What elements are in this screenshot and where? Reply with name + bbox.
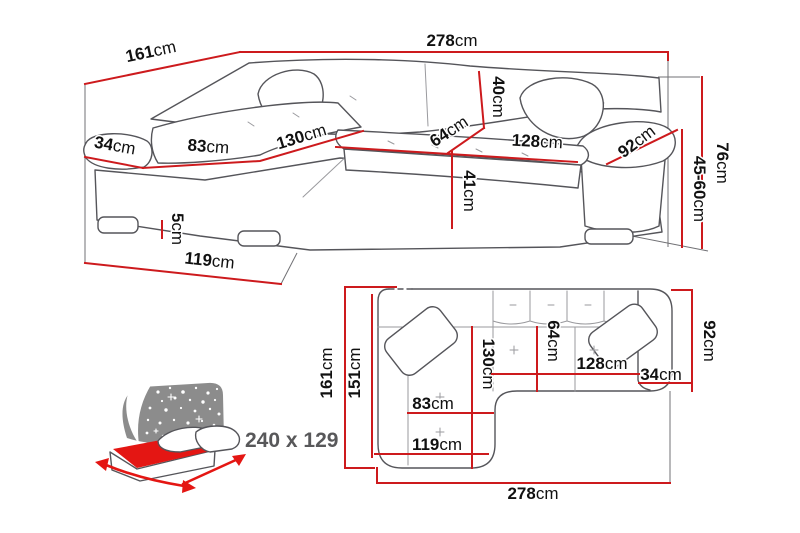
dim-plan-right-arm-width: 34cm [639, 365, 691, 384]
dim-label-plan-119cm: 119cm [412, 435, 462, 454]
sofa-dimensions-diagram: 278cm 161cm 34cm 83cm 130cm 40cm 64cm 12… [0, 0, 800, 533]
dim-label-119cm: 119cm [184, 248, 236, 272]
dim-label-plan-151cm: 151cm [345, 347, 364, 398]
dim-label-plan-278cm: 278cm [507, 484, 558, 503]
bed-size-label: 240 x 129 [245, 429, 338, 452]
dim-plan-inner-depth: 151cm [345, 295, 372, 457]
dim-plan-total-width: 278cm [377, 468, 670, 503]
dim-persp-total-width: 278cm [240, 31, 668, 60]
dim-label-5cm: 5cm [168, 213, 187, 245]
back-pillow-right [520, 78, 603, 139]
dim-label-278cm: 278cm [426, 31, 477, 50]
dim-label-plan-64cm: 64cm [544, 320, 563, 362]
dim-label-plan-83cm: 83cm [412, 394, 454, 413]
dim-label-41cm: 41cm [460, 170, 479, 212]
pillow-roll [196, 426, 240, 452]
dim-persp-chaise-outer-length: 119cm [85, 248, 281, 284]
dim-label-83cm: 83cm [187, 136, 230, 158]
dim-label-plan-130cm: 130cm [479, 338, 498, 389]
sofa-perspective-view: 278cm 161cm 34cm 83cm 130cm 40cm 64cm 12… [84, 31, 732, 284]
dim-label-plan-34cm: 34cm [640, 365, 682, 384]
dim-label-45-60cm: 45-60cm [690, 156, 709, 222]
dim-persp-seat-height: 45-60cm [682, 130, 709, 247]
dim-label-40cm: 40cm [489, 76, 508, 118]
dim-label-plan-161cm: 161cm [317, 347, 336, 398]
dim-label-plan-92cm: 92cm [700, 320, 719, 362]
dim-label-76cm: 76cm [713, 142, 732, 184]
fold-out-bed-icon [95, 426, 246, 493]
dim-label-161cm: 161cm [124, 37, 178, 66]
dim-label-128cm: 128cm [511, 131, 563, 153]
sofa-plan-view: 161cm 151cm 130cm 64cm 128cm 34cm 92cm [317, 287, 719, 503]
diagram-canvas: 278cm 161cm 34cm 83cm 130cm 40cm 64cm 12… [0, 0, 800, 533]
dim-label-plan-128cm: 128cm [576, 354, 627, 373]
sofa-bed-function-icon: 240 x 129 [95, 383, 338, 493]
dim-persp-side-depth: 161cm [85, 37, 240, 84]
